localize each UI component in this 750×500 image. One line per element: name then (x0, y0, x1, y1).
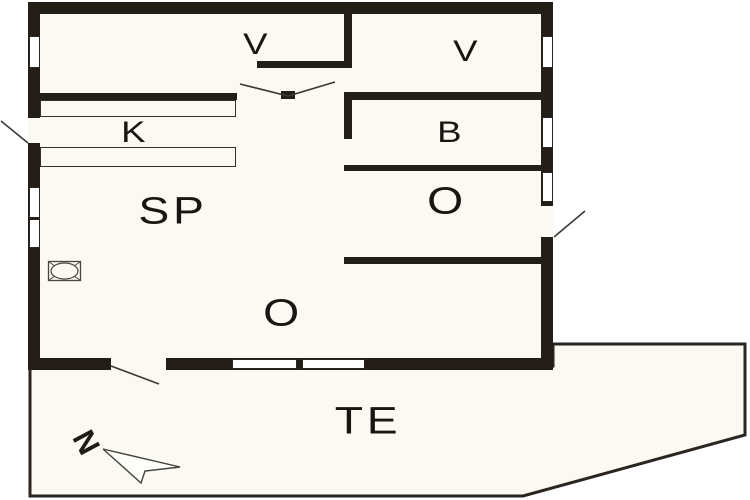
wall-outer-top (28, 2, 553, 14)
room-label-o-living: O (263, 293, 303, 336)
room-label-top-right-v: V (453, 35, 479, 69)
wall-b-o-divider (344, 165, 541, 171)
room-label-o-right: O (427, 181, 467, 224)
room-label-bathroom-b: B (437, 116, 463, 150)
window-left-2 (29, 187, 40, 218)
wall-closet-bottom (257, 61, 352, 68)
double-door-post (281, 91, 295, 99)
kitchen-counter-bottom (40, 147, 236, 167)
window-right-2 (542, 117, 553, 148)
window-left-3 (29, 219, 40, 248)
door-opening-left (28, 118, 40, 143)
kitchen-counter-top (40, 100, 236, 117)
door-opening-right (541, 206, 553, 237)
window-right-3 (542, 172, 553, 202)
wall-o-bottom (344, 257, 541, 264)
door-opening-terrace (111, 358, 166, 370)
floor-plan: N V V K B SP O O TE (0, 0, 750, 500)
room-label-sp: SP (138, 191, 207, 234)
room-label-kitchen-k: K (121, 116, 147, 150)
window-bottom-2 (302, 359, 365, 369)
wall-hall-divider (40, 93, 237, 100)
wall-closet-right (344, 14, 352, 68)
room-label-closet-v: V (243, 28, 269, 62)
wall-bathroom-stub (344, 100, 352, 139)
window-right-1 (542, 36, 553, 68)
wall-v-b-divider (344, 92, 541, 100)
window-left-1 (29, 36, 40, 68)
room-label-terrace-te: TE (335, 401, 402, 444)
window-bottom-1 (232, 359, 297, 369)
